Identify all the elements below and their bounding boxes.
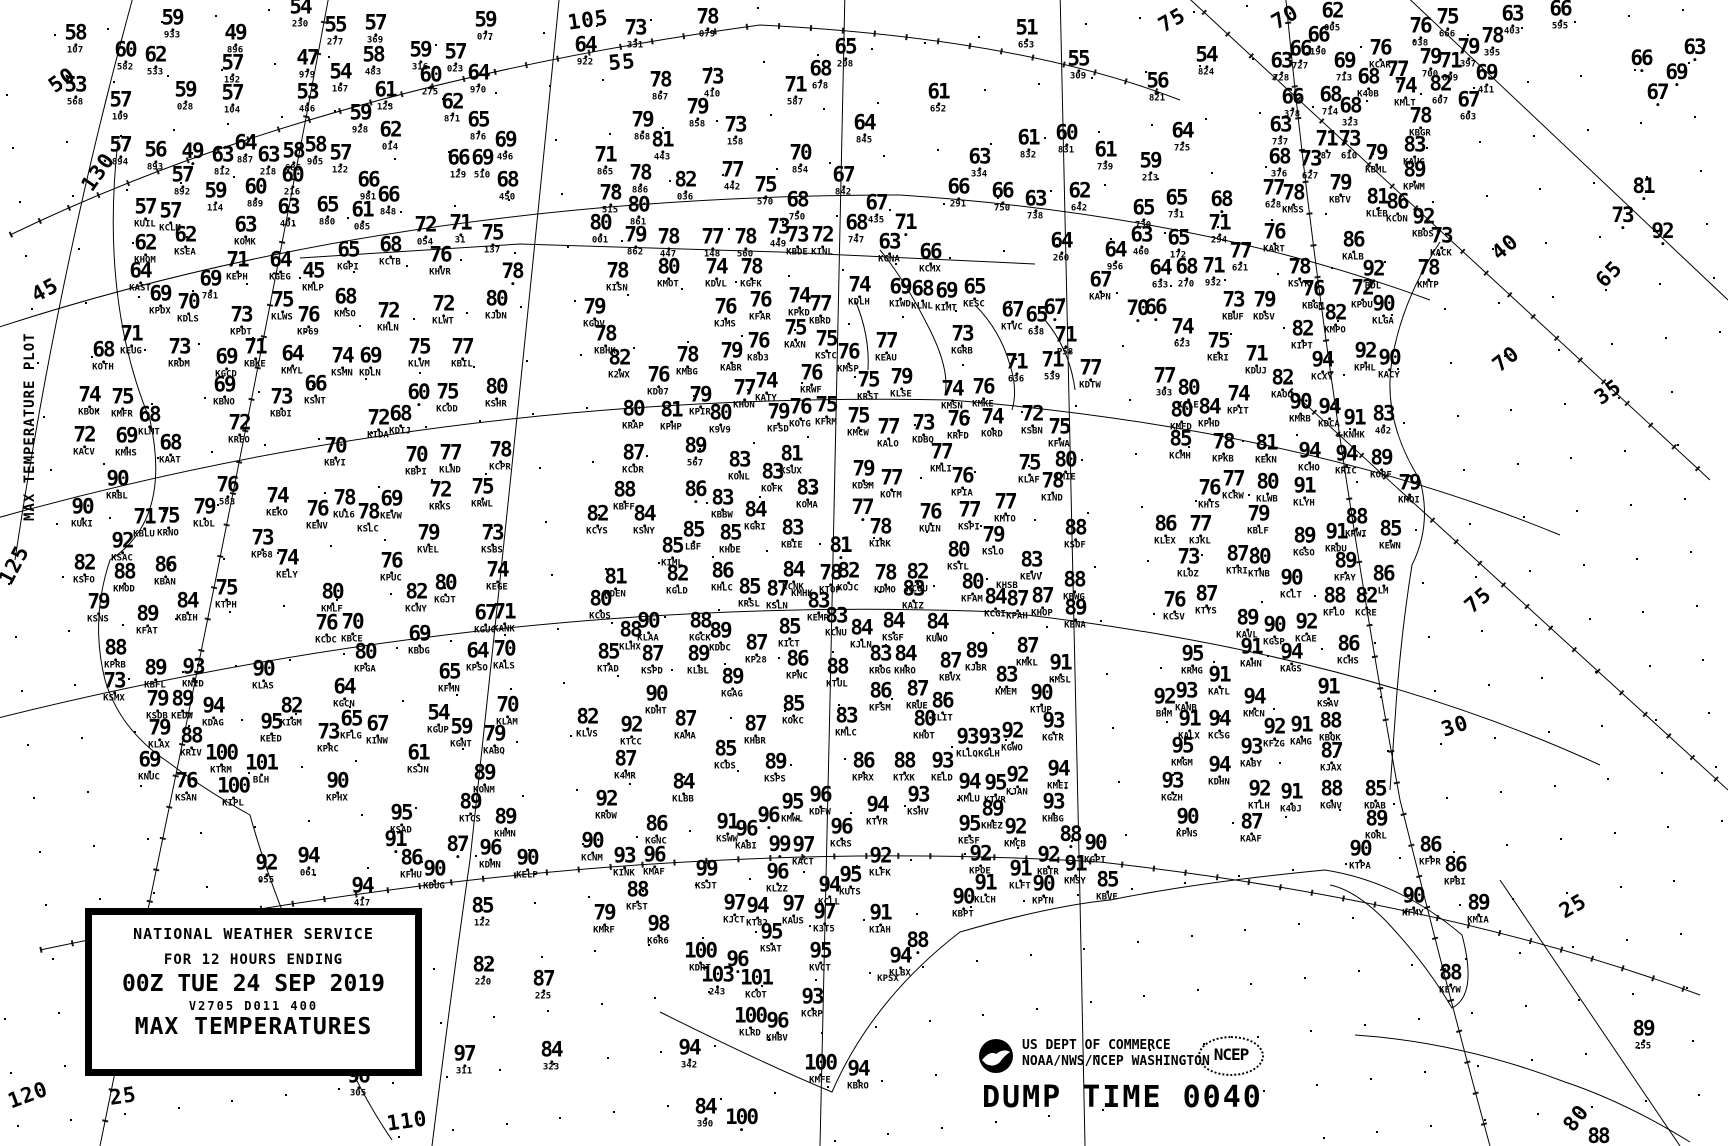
station-location-dot xyxy=(835,626,838,629)
station-id: KUIL xyxy=(134,219,156,229)
graticule-dot xyxy=(869,972,871,974)
station-location-dot xyxy=(186,611,189,614)
station-max-temp: 73 xyxy=(724,115,745,134)
station-plot: 86KPNC xyxy=(786,649,808,681)
station-id: KSPI xyxy=(958,522,980,532)
station-plot: 90KPNS xyxy=(1176,807,1198,839)
station-plot: 86 xyxy=(684,480,705,499)
graticule-dot xyxy=(1310,1030,1312,1032)
station-max-temp: 68 xyxy=(379,235,401,254)
station-plot: 93KABY xyxy=(1240,737,1262,769)
station-location-dot xyxy=(1180,420,1183,423)
station-plot: 94KDAG xyxy=(202,696,224,728)
station-max-temp: 99 xyxy=(768,835,789,854)
graticule-dot xyxy=(1599,236,1601,238)
graticule-dot xyxy=(1484,1119,1486,1121)
graticule-dot xyxy=(1252,58,1254,60)
station-max-temp: 65 xyxy=(337,240,359,259)
station-max-temp: 78 xyxy=(1481,26,1502,45)
station-max-temp: 66 xyxy=(447,148,468,167)
station-plot: 69510 xyxy=(471,148,492,180)
station-id: KLBL xyxy=(687,666,709,676)
station-location-dot xyxy=(291,364,294,367)
graticule-dot xyxy=(669,180,671,182)
station-max-temp: 71 xyxy=(244,337,266,356)
station-max-temp: 73 xyxy=(1338,129,1359,148)
station-location-dot xyxy=(637,215,640,218)
station-plot: 63401 xyxy=(277,197,298,229)
graticule-dot xyxy=(21,690,23,692)
station-plot: 87KPAH xyxy=(1006,589,1028,621)
station-max-temp: 74 xyxy=(755,371,777,390)
station-plot: 88KEYW xyxy=(1439,963,1461,995)
station-max-temp: 91 xyxy=(1280,782,1302,801)
station-location-dot xyxy=(1305,632,1308,635)
graticule-dot xyxy=(1153,613,1155,615)
station-plot: 87225 xyxy=(532,969,553,1001)
station-location-dot xyxy=(504,150,507,153)
station-id: 865 xyxy=(594,167,615,177)
station-plot: 87KBVX xyxy=(939,651,961,683)
station-location-dot xyxy=(726,832,729,835)
dept-line: US DEPT OF COMMERCE xyxy=(1022,1038,1210,1054)
station-location-dot xyxy=(339,82,342,85)
station-max-temp: 65 xyxy=(467,110,488,129)
station-location-dot xyxy=(842,185,845,188)
station-plot: 91KIAH xyxy=(869,903,891,935)
station-id: KCOD xyxy=(436,404,458,414)
station-plot: 90KGPT xyxy=(1084,833,1106,865)
station-plot: 90KTPA xyxy=(1349,839,1371,871)
station-id: KONL xyxy=(728,472,750,482)
station-max-temp: 75 xyxy=(408,337,430,356)
station-id: KANK xyxy=(493,624,515,634)
station-id: KMCW xyxy=(847,428,869,438)
station-id: KORF xyxy=(1370,470,1392,480)
station-max-temp: 59 xyxy=(204,181,225,200)
station-location-dot xyxy=(1347,654,1350,657)
graticule-dot xyxy=(446,1076,448,1078)
station-id: 395 xyxy=(1481,48,1502,58)
station-max-temp: 93 xyxy=(801,987,823,1006)
station-location-dot xyxy=(1177,248,1180,251)
graticule-dot xyxy=(1248,494,1250,496)
graticule-dot xyxy=(1304,977,1306,979)
station-id: KFST xyxy=(626,902,648,912)
station-plot: 73KPDT xyxy=(230,305,252,337)
station-id: KCNY xyxy=(405,604,427,614)
station-plot: 85KOKC xyxy=(782,694,804,726)
station-max-temp: 72 xyxy=(228,413,250,432)
station-location-dot xyxy=(307,866,310,869)
station-id: KBLF xyxy=(1247,526,1269,536)
station-plot: 82KIPT xyxy=(1291,319,1313,351)
graticule-dot xyxy=(730,717,732,719)
station-id: KIWD xyxy=(889,299,911,309)
graticule-dot xyxy=(1535,624,1537,626)
station-location-dot xyxy=(899,966,902,969)
station-id: 275 xyxy=(419,87,440,97)
station-location-dot xyxy=(484,30,487,33)
station-id: KMTP xyxy=(1417,280,1439,290)
station-plot: 93KHBG xyxy=(1042,792,1064,824)
graticule-dot xyxy=(819,543,821,545)
station-max-temp: 68 xyxy=(334,287,356,306)
station-id: KLHX xyxy=(619,642,641,652)
graticule-dot xyxy=(1471,1012,1473,1014)
graticule-dot xyxy=(473,366,475,368)
station-max-temp: 63 xyxy=(878,232,900,251)
station-id: KDMN xyxy=(479,860,501,870)
station-id: KHVR xyxy=(429,267,451,277)
station-location-dot xyxy=(506,715,509,718)
station-id: KMSP xyxy=(837,364,859,374)
station-max-temp: 94 xyxy=(678,1038,699,1057)
station-id: KTUL xyxy=(826,679,848,689)
station-max-temp: 66 xyxy=(1549,0,1570,18)
station-id: KCLT xyxy=(1280,590,1302,600)
station-max-temp: 55 xyxy=(324,15,345,34)
station-max-temp: 100 xyxy=(734,1006,766,1025)
graticule-dot xyxy=(943,203,945,205)
station-max-temp: 82 xyxy=(666,564,688,583)
graticule-dot xyxy=(25,255,27,257)
station-location-dot xyxy=(704,1117,707,1120)
station-location-dot xyxy=(736,970,739,973)
station-plot: 80KGJT xyxy=(434,573,456,605)
station-max-temp: 78 xyxy=(1212,432,1234,451)
station-id: KTPA xyxy=(1349,861,1371,871)
station-max-temp: 90 xyxy=(252,659,274,678)
graticule-dot xyxy=(728,228,730,230)
station-plot: 74KORD xyxy=(981,407,1003,439)
station-max-temp: 45 xyxy=(302,261,324,280)
station-max-temp: 76 xyxy=(947,409,969,428)
graticule-dot xyxy=(594,950,596,952)
station-max-temp: 82 xyxy=(608,348,630,367)
graticule-dot xyxy=(1003,250,1005,252)
graticule-dot xyxy=(844,758,846,760)
station-max-temp: 85 xyxy=(738,577,760,596)
station-id: KMGM xyxy=(1171,758,1193,768)
station-id: KFHU xyxy=(400,870,422,880)
station-location-dot xyxy=(1367,87,1370,90)
graticule-dot xyxy=(887,1133,889,1135)
station-plot: 92KSAC xyxy=(111,531,133,563)
station-plot: 86KHLC xyxy=(711,561,733,593)
station-id: KMOT xyxy=(657,279,679,289)
station-id: KPTN xyxy=(1032,896,1054,906)
graticule-dot xyxy=(324,492,326,494)
station-max-temp: 63 xyxy=(1269,115,1290,134)
station-max-temp: 76 xyxy=(919,502,941,521)
station-location-dot xyxy=(887,437,890,440)
station-location-dot xyxy=(481,497,484,500)
station-plot: 79KDSV xyxy=(1253,290,1275,322)
station-id: KP68 xyxy=(251,550,273,560)
station-location-dot xyxy=(607,662,610,665)
station-plot: 87KAMA xyxy=(674,709,696,741)
station-plot: 76038 xyxy=(1409,16,1430,48)
graticule-dot xyxy=(1444,308,1446,310)
station-plot: 63728 xyxy=(1270,51,1291,83)
station-max-temp: 61 xyxy=(407,743,429,762)
graticule-dot xyxy=(147,838,149,840)
station-location-dot xyxy=(798,306,801,309)
station-plot: 65KFMN xyxy=(438,662,460,694)
station-max-temp: 69 xyxy=(1333,51,1354,70)
graticule-dot xyxy=(1283,327,1285,329)
station-location-dot xyxy=(1379,58,1382,61)
station-id: 220 xyxy=(472,977,493,987)
station-max-temp: 80 xyxy=(657,257,679,276)
station-plot: 73KBUF xyxy=(1222,290,1244,322)
station-max-temp: 86 xyxy=(931,691,953,710)
station-id: 653 xyxy=(1015,40,1036,50)
station-id: 739 xyxy=(1094,162,1115,172)
graticule-dot xyxy=(592,461,594,463)
station-plot: 78886 xyxy=(629,163,650,195)
station-location-dot xyxy=(491,543,494,546)
station-plot: 79KMQI xyxy=(1398,473,1420,505)
station-plot: 80KPGA xyxy=(354,642,376,674)
station-location-dot xyxy=(1333,606,1336,609)
station-max-temp: 69 xyxy=(149,284,171,303)
station-id: 213 xyxy=(1139,173,1160,183)
station-plot: 80KCLE xyxy=(1177,378,1199,410)
station-location-dot xyxy=(917,805,920,808)
station-location-dot xyxy=(148,770,151,773)
station-plot: 64KGCN xyxy=(333,677,355,709)
station-plot: 96KLZZ xyxy=(766,862,788,894)
station-location-dot xyxy=(374,33,377,36)
station-location-dot xyxy=(968,520,971,523)
station-location-dot xyxy=(1187,567,1190,570)
station-plot: 79KLAX xyxy=(148,718,170,750)
station-plot: 61KSJN xyxy=(407,743,429,775)
graticule-dot xyxy=(452,1129,454,1131)
station-max-temp: 90 xyxy=(1030,683,1052,702)
station-max-temp: 57 xyxy=(221,83,242,102)
graticule-dot xyxy=(58,1012,60,1014)
graticule-dot xyxy=(198,343,200,345)
station-max-temp: 71 xyxy=(120,324,142,343)
graticule-dot xyxy=(1403,422,1405,424)
station-max-temp: 78 xyxy=(594,324,616,343)
graticule-dot xyxy=(774,1092,776,1094)
station-max-temp: 92 xyxy=(1295,612,1317,631)
station-plot: 63 xyxy=(1683,38,1704,57)
station-id: KSBS xyxy=(481,545,503,555)
station-id: KSMX xyxy=(103,693,125,703)
station-location-dot xyxy=(1382,314,1385,317)
station-plot: 90KRBL xyxy=(106,469,128,501)
graticule-dot xyxy=(1434,690,1436,692)
station-max-temp: 94 xyxy=(1280,642,1302,661)
station-plot: 72KIDA xyxy=(367,408,389,440)
station-location-dot xyxy=(1159,278,1162,281)
graticule-dot xyxy=(1552,296,1554,298)
station-max-temp: 97 xyxy=(453,1044,474,1063)
station-id: 628 xyxy=(1262,200,1283,210)
station-plot: 94KMCN xyxy=(1243,687,1265,719)
station-id: KCLE xyxy=(1177,400,1199,410)
station-max-temp: 65 xyxy=(963,277,985,296)
graticule-dot xyxy=(1574,21,1576,23)
station-id: 309 xyxy=(1067,71,1088,81)
station-location-dot xyxy=(389,140,392,143)
graticule-dot xyxy=(601,1003,603,1005)
station-id: KIGM xyxy=(280,718,302,728)
graticule-dot xyxy=(889,209,891,211)
station-id: KDIJ xyxy=(389,426,411,436)
station-max-temp: 73 xyxy=(701,67,722,86)
station-location-dot xyxy=(716,985,719,988)
station-plot: 84KGRI xyxy=(744,500,766,532)
graticule-dot xyxy=(735,281,737,283)
station-plot: 81KSUX xyxy=(780,444,802,476)
station-id: KSNY xyxy=(633,526,655,536)
station-max-temp: 72 xyxy=(414,215,435,234)
station-max-temp: 80 xyxy=(709,403,731,422)
graticule-dot xyxy=(1545,242,1547,244)
station-max-temp: 91 xyxy=(1325,522,1347,541)
station-location-dot xyxy=(415,465,418,468)
station-location-dot xyxy=(483,783,486,786)
station-location-dot xyxy=(1250,757,1253,760)
station-id: KSFO xyxy=(73,575,95,585)
station-plot: 68323 xyxy=(1339,96,1360,128)
station-id: KBIL xyxy=(451,359,473,369)
station-plot: 92BHM xyxy=(1153,687,1174,719)
station-location-dot xyxy=(484,623,487,626)
station-max-temp: 69 xyxy=(115,426,137,445)
station-location-dot xyxy=(584,55,587,58)
graticule-dot xyxy=(555,139,557,141)
station-location-dot xyxy=(604,165,607,168)
graticule-dot xyxy=(803,871,805,873)
station-id: KRBL xyxy=(106,491,128,501)
station-location-dot xyxy=(1327,697,1330,700)
station-max-temp: 78 xyxy=(489,440,511,459)
station-plot: 81 xyxy=(1632,177,1653,196)
station-max-temp: 89 xyxy=(981,799,1003,818)
station-location-dot xyxy=(1106,890,1109,893)
station-plot: 91KAMG xyxy=(1290,715,1312,747)
station-plot: 75KCOD xyxy=(436,382,458,414)
station-location-dot xyxy=(1640,69,1643,72)
station-location-dot xyxy=(770,942,773,945)
station-max-temp: 80 xyxy=(485,377,507,396)
station-max-temp: 70 xyxy=(496,695,518,714)
station-max-temp: 78 xyxy=(606,261,628,280)
station-id: KHMN xyxy=(494,829,516,839)
station-max-temp: 77 xyxy=(701,227,722,246)
station-location-dot xyxy=(978,167,981,170)
station-location-dot xyxy=(184,245,187,248)
station-max-temp: 79 xyxy=(148,718,170,737)
station-id: KPRX xyxy=(852,773,874,783)
station-plot: 95KEED xyxy=(260,712,282,744)
station-max-temp: 78 xyxy=(1041,471,1063,490)
station-id: KGWO xyxy=(1001,743,1023,753)
station-location-dot xyxy=(661,150,664,153)
station-id: KACT xyxy=(792,857,814,867)
station-id: KJCT xyxy=(723,915,745,925)
station-id: KTRI xyxy=(1226,566,1248,576)
station-id: 848 xyxy=(377,207,398,217)
station-max-temp: 99 xyxy=(695,859,717,878)
station-id: KGRI xyxy=(744,522,766,532)
station-max-temp: 89 xyxy=(1293,526,1315,545)
station-id: KCHO xyxy=(1298,463,1320,473)
station-id: 158 xyxy=(724,137,745,147)
station-plot: 94KCSG xyxy=(1208,709,1230,741)
station-max-temp: 63 xyxy=(211,145,232,164)
graticule-dot xyxy=(1525,1005,1527,1007)
station-id: KLND xyxy=(439,465,461,475)
station-plot: 80KJDN xyxy=(485,289,507,321)
station-max-temp: 61 xyxy=(1017,128,1038,147)
station-max-temp: 97 xyxy=(723,893,745,912)
station-plot: 74KDLH xyxy=(848,275,870,307)
station-location-dot xyxy=(1345,464,1348,467)
station-plot: 64887 xyxy=(234,133,255,165)
station-max-temp: 77 xyxy=(994,492,1016,511)
graticule-dot xyxy=(995,1121,997,1123)
graticule-dot xyxy=(920,477,922,479)
station-id: KDFW xyxy=(809,807,831,817)
station-plot: 66291 xyxy=(947,177,968,209)
graticule-dot xyxy=(62,576,64,578)
station-location-dot xyxy=(731,180,734,183)
station-id: KMKL xyxy=(1016,658,1038,668)
station-max-temp: 84 xyxy=(540,1040,561,1059)
station-location-dot xyxy=(1361,298,1364,301)
station-id: KP69 xyxy=(297,327,319,337)
station-plot: 77KOTM xyxy=(880,468,902,500)
graticule-dot xyxy=(1345,863,1347,865)
station-max-temp: 58 xyxy=(282,141,303,160)
station-plot: 90KPHX xyxy=(326,771,348,803)
station-id: KFLO xyxy=(1323,608,1345,618)
graticule-dot xyxy=(64,1065,66,1067)
station-location-dot xyxy=(1026,656,1029,659)
graticule-dot xyxy=(1112,727,1114,729)
station-max-temp: 82 xyxy=(73,553,95,572)
graticule-dot xyxy=(621,240,623,242)
station-plot: 81 xyxy=(829,536,850,555)
station-max-temp: 88 xyxy=(1064,518,1086,537)
graticule-dot xyxy=(1191,935,1193,937)
station-location-dot xyxy=(489,858,492,861)
station-location-dot xyxy=(231,103,234,106)
station-id: KRAP xyxy=(622,421,644,431)
graticule-dot xyxy=(1418,1018,1420,1020)
station-location-dot xyxy=(1382,424,1385,427)
station-plot: 89KFAY xyxy=(1334,551,1356,583)
graticule-dot xyxy=(406,265,408,267)
station-location-dot xyxy=(879,923,882,926)
station-location-dot xyxy=(439,265,442,268)
station-id: KGZH xyxy=(1161,793,1183,803)
station-id: KEWN xyxy=(1379,541,1401,551)
station-max-temp: 78 xyxy=(740,257,762,276)
station-plot: 51653 xyxy=(1015,18,1036,50)
station-id: 323 xyxy=(540,1062,561,1072)
station-location-dot xyxy=(236,270,239,273)
station-location-dot xyxy=(190,746,193,749)
